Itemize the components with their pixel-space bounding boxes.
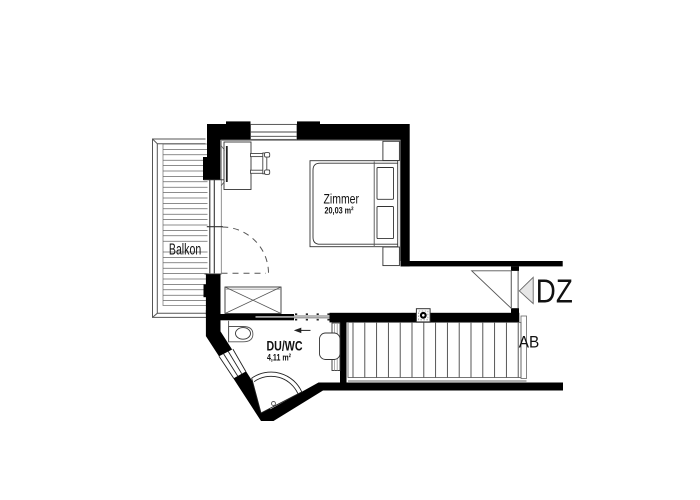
- svg-text:DU/WC: DU/WC: [267, 338, 303, 354]
- svg-text:AB: AB: [519, 333, 540, 351]
- svg-text:Balkon: Balkon: [169, 242, 201, 259]
- svg-text:DZ: DZ: [536, 273, 573, 310]
- svg-text:4,11 m²: 4,11 m²: [267, 352, 291, 362]
- svg-text:20,03 m²: 20,03 m²: [325, 205, 354, 215]
- svg-text:Zimmer: Zimmer: [324, 191, 360, 207]
